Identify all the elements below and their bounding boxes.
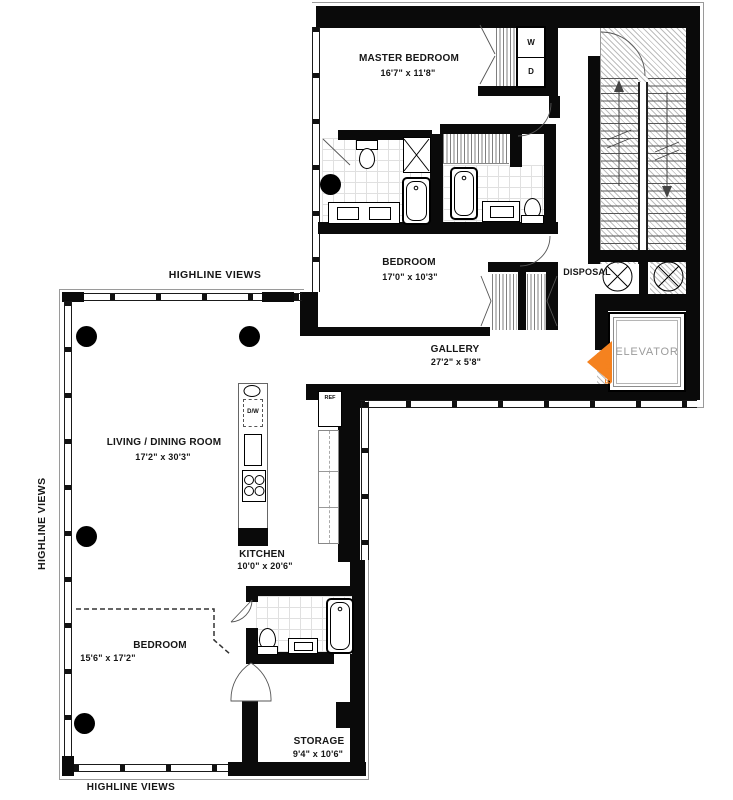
outline: [59, 289, 60, 780]
outline: [312, 2, 703, 3]
room-label-gallery: GALLERY: [431, 344, 480, 355]
wall: [595, 294, 686, 311]
island-cabinet: [244, 434, 262, 466]
stair-divider-wall: [638, 82, 648, 264]
bath-closet-rod: [443, 134, 509, 164]
shower-icon: [403, 137, 431, 173]
bathtub-icon: [326, 598, 354, 654]
room-dims-living-dining: 17'2" x 30'3": [135, 452, 190, 462]
dryer-icon: D: [518, 57, 544, 86]
wall: [310, 327, 490, 336]
counter-divider: [319, 471, 338, 472]
wall: [316, 6, 700, 28]
wall: [639, 252, 648, 298]
bedroom-closet-rod-left: [492, 274, 517, 330]
sink-icon: [337, 207, 359, 220]
room-dims-gallery: 27'2" x 5'8": [431, 357, 481, 367]
stair-treads-right: [648, 78, 686, 264]
outline: [703, 2, 704, 408]
washer-dryer-stack: W D: [516, 26, 546, 88]
refrigerator-label: REF: [319, 395, 341, 401]
wall: [246, 586, 258, 602]
room-dims-bedroom-lower: 15'6" x 17'2": [80, 653, 135, 663]
bathtub-icon: [402, 177, 431, 225]
kitchen-counter: [318, 430, 339, 544]
dryer-label: D: [528, 67, 534, 76]
sink-icon: [288, 638, 318, 654]
room-label-living-dining: LIVING / DINING ROOM: [107, 437, 222, 448]
wall: [588, 56, 600, 264]
elevator-label-wrap: ELEVATOR: [616, 320, 678, 384]
elevator-cab: ELEVATOR: [608, 312, 686, 392]
room-dims-storage: 9'4" x 10'6": [293, 749, 343, 759]
room-label-storage: STORAGE: [294, 736, 345, 747]
chute-hatch: [650, 258, 687, 295]
bedroom-closet-rod-right: [527, 274, 546, 330]
toilet-icon: [257, 646, 278, 655]
vanity-icon: [482, 201, 520, 222]
sink-basin: [294, 642, 313, 651]
toilet-icon: [521, 215, 544, 224]
column: [320, 174, 341, 195]
bathtub-icon: [450, 167, 478, 220]
wall: [246, 586, 364, 596]
washer-icon: W: [518, 28, 544, 58]
toilet-icon: [359, 148, 375, 169]
wall: [549, 96, 560, 118]
counter-divider: [319, 507, 338, 508]
room-dims-kitchen: 10'0" x 20'6": [237, 561, 292, 571]
wall: [544, 130, 556, 222]
highline-views-label-top: HIGHLINE VIEWS: [169, 269, 262, 281]
wall: [588, 250, 686, 262]
double-vanity-icon: [328, 202, 400, 224]
wall: [546, 262, 558, 330]
room-label-kitchen: KITCHEN: [239, 549, 285, 560]
room-dims-bedroom-upper: 17'0" x 10'3": [382, 272, 437, 282]
entry-label: ENTRY: [604, 340, 613, 384]
column: [239, 326, 260, 347]
sink-icon: [369, 207, 391, 220]
room-label-master-bedroom: MASTER BEDROOM: [359, 53, 459, 64]
wall: [518, 272, 526, 330]
wall: [242, 700, 258, 766]
window-band: [74, 764, 230, 772]
room-label-bedroom-upper: BEDROOM: [382, 257, 436, 268]
wall: [430, 134, 443, 230]
washer-label: W: [527, 38, 535, 47]
counter-dash: [329, 431, 330, 543]
highline-views-label-bottom: HIGHLINE VIEWS: [87, 782, 175, 793]
column: [74, 713, 95, 734]
window-band: [64, 301, 72, 769]
wall: [510, 128, 522, 167]
wall: [62, 756, 74, 776]
wall: [546, 16, 558, 96]
island-end-wall: [238, 528, 268, 546]
column: [76, 326, 97, 347]
window-band: [360, 400, 697, 408]
dishwasher-label: D/W: [244, 409, 262, 415]
sink-icon: [490, 206, 514, 218]
floor-plan: W D ELEVATOR ENTRY D/W REF: [0, 0, 733, 800]
room-label-bedroom-lower: BEDROOM: [133, 640, 187, 651]
window-band: [312, 27, 320, 292]
stair-treads-left: [601, 78, 638, 264]
room-label-disposal: DISPOSAL: [563, 267, 611, 277]
wall: [262, 292, 294, 302]
elevator-label: ELEVATOR: [615, 346, 678, 358]
master-closet-rod: [496, 22, 516, 86]
cooktop-icon: [242, 470, 266, 502]
room-dims-master-bedroom: 16'7" x 11'8": [381, 68, 436, 78]
wall: [686, 28, 700, 400]
highline-views-label-left: HIGHLINE VIEWS: [36, 466, 48, 570]
window-band: [361, 402, 369, 560]
wall: [336, 702, 352, 728]
outline: [59, 289, 304, 290]
outline: [59, 779, 369, 780]
column: [76, 526, 97, 547]
refrigerator-icon: REF: [318, 391, 342, 427]
wall: [440, 124, 556, 134]
